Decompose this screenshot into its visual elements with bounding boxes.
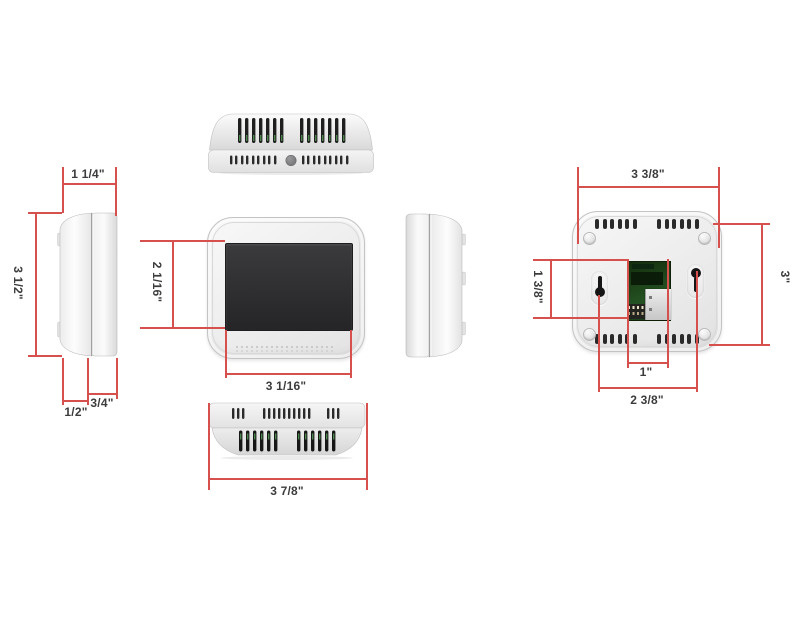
extension-line [533, 317, 627, 319]
pcb-chip [631, 272, 663, 285]
dimension-line [761, 223, 763, 345]
dimension-line [598, 387, 697, 389]
front-view [207, 217, 365, 359]
terminal-pins [627, 304, 645, 319]
back-plate-profile [406, 214, 430, 357]
extension-line [667, 259, 669, 368]
side-tab [462, 234, 466, 245]
dim-label-keyhole-spacing: 2 3/8" [607, 392, 687, 408]
extension-line [225, 330, 227, 378]
extension-line [696, 271, 698, 392]
dim-label-back-height: 3" [777, 267, 793, 287]
bottom-view-drawing [208, 402, 366, 460]
back-plate-profile [91, 213, 117, 356]
mounting-keyhole-left [591, 271, 608, 305]
back-view [572, 211, 722, 352]
front-body-profile [429, 214, 462, 357]
dimension-line [225, 373, 351, 375]
corner-screw [583, 328, 596, 341]
display-screen [225, 243, 353, 331]
extension-line [28, 212, 62, 214]
extension-line [627, 259, 629, 368]
dimension-diagram: 1 1/4" 3 1/2" 3/4" 1/2" 2 1/16" 3 1/16" … [0, 0, 800, 619]
extension-line [366, 403, 368, 490]
bottom-housing [212, 428, 362, 455]
dim-label-opening-height: 1 3/8" [530, 263, 546, 311]
extension-line [533, 259, 627, 261]
extension-line [598, 295, 600, 392]
vent-slots-back-bottom-left [595, 334, 637, 344]
circuit-board [628, 261, 671, 321]
front-body-profile [60, 213, 92, 356]
corner-screw [698, 328, 711, 341]
extension-line [140, 327, 225, 329]
dimension-line [35, 212, 37, 356]
dim-label-back-width: 3 3/8" [608, 166, 688, 182]
top-view-drawing [207, 109, 375, 175]
front-vent-dots [236, 350, 336, 352]
top-housing [210, 114, 373, 150]
front-vent-dots [236, 346, 336, 348]
dim-label-side-height: 3 1/2" [10, 265, 26, 301]
extension-line [350, 330, 352, 378]
drop-shadow [221, 456, 353, 460]
dimension-line [208, 478, 367, 480]
right-side-view-drawing [404, 210, 468, 360]
extension-line [140, 240, 225, 242]
side-tab [462, 272, 466, 285]
dim-label-side-depth-total: 1 1/4" [60, 166, 116, 182]
dim-label-screen-width: 3 1/16" [246, 378, 326, 394]
vent-slots-back-bottom-right [657, 334, 699, 344]
dim-label-opening-width: 1" [626, 364, 666, 380]
left-side-view-drawing [55, 206, 119, 358]
extension-line [28, 355, 62, 357]
dim-label-bottom-width: 3 7/8" [247, 483, 327, 499]
dimension-line [172, 240, 174, 328]
pcb-trace [632, 264, 654, 269]
dimension-line [577, 186, 719, 188]
extension-line [577, 167, 579, 244]
corner-screw [583, 232, 596, 245]
sensor-button [286, 155, 296, 165]
dimension-line [62, 183, 116, 185]
dim-label-screen-height: 2 1/16" [149, 254, 165, 310]
keyhole-circle [595, 287, 605, 297]
corner-screw [698, 232, 711, 245]
dim-label-side-front-depth: 1/2" [56, 404, 96, 420]
vent-slots-back-top-left [595, 219, 637, 229]
dimension-line [550, 259, 552, 318]
side-tab [462, 322, 466, 335]
vent-slots-back-top-right [657, 219, 699, 229]
extension-line [718, 167, 720, 248]
extension-line [62, 358, 64, 405]
extension-line [208, 403, 210, 490]
